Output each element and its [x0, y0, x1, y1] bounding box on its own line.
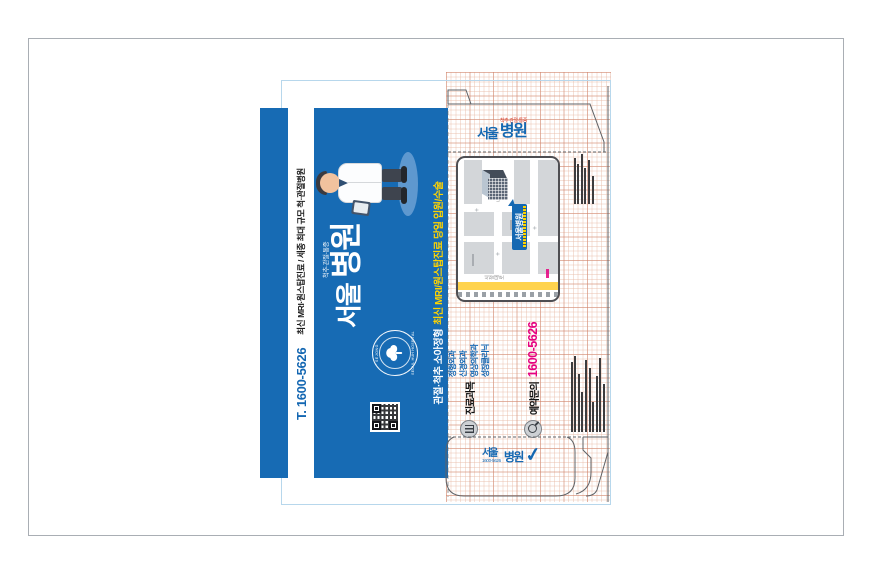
strip-phone: T. 1600-5626 [294, 348, 309, 420]
services-yellow-text: 최신 MRI/원스탑진료 당일 입원/수술 [430, 181, 445, 324]
map-place-dash [472, 254, 474, 266]
intersection-marker: + [532, 226, 539, 230]
main-road-yellow [458, 282, 560, 290]
map-hospital-badge: 서울병원 [512, 204, 527, 250]
contact-strip: T. 1600-5626 최신 MRI·원스탑진료 / 세종 최대 규모 척·관… [288, 108, 314, 478]
flap-logo-suffix: 병원 [500, 124, 526, 140]
intersection-marker: + [474, 208, 481, 212]
location-map: 시청대로 나성북로 + + + 서울병원 [456, 156, 560, 302]
badge-yellow-bar [523, 206, 526, 248]
blue-panel: T. 1600-5626 최신 MRI·원스탑진료 / 세종 최대 규모 척·관… [260, 108, 448, 478]
qr-finder-icon [372, 404, 381, 413]
top-flap-logo: 서울 척추·관절·통증 병원 [477, 117, 527, 140]
flap-logo-phone: 1600-5626 [482, 458, 501, 463]
department-item: 신경외과 [458, 344, 469, 377]
clipboard-icon [351, 200, 371, 216]
map-block [514, 160, 530, 204]
qr-code [370, 402, 400, 432]
intersection-marker: + [495, 252, 502, 256]
tree-icon [386, 345, 402, 361]
qr-finder-icon [372, 421, 381, 430]
railway-line [458, 292, 560, 297]
qr-finder-icon [389, 421, 398, 430]
clinic-section-label: 진료과목 [462, 382, 477, 415]
stamp-bottom-text: SEOUL HUH HOSPITAL [411, 331, 415, 375]
map-block [464, 212, 494, 236]
monogram-text: 서울 [477, 126, 497, 141]
booking-section-label: 예약문의 [526, 382, 541, 415]
map-block [464, 242, 494, 274]
map-block [464, 160, 482, 204]
checkmark-swoosh-icon: ✓ [524, 445, 542, 466]
brand-monogram: 서울 [338, 284, 362, 328]
department-item: 정형외과 [447, 344, 458, 377]
department-list: 정형외과 신경외과 영상의학과 성장클리닉 [447, 344, 491, 377]
logo-tagline: 척추·관절·통증 [320, 242, 330, 278]
hospital-stamp-logo: · SEJONG · SEOUL HUH HOSPITAL [372, 330, 418, 376]
road-label-vertical: 시청대로 [484, 274, 504, 281]
clinic-departments-group: 진료과목 정형외과 신경외과 영상의학과 성장클리닉 [444, 322, 494, 438]
print-layout-canvas: T. 1600-5626 최신 MRI·원스탑진료 / 세종 최대 규모 척·관… [0, 0, 872, 570]
booking-group: 예약문의 1600-5626 [508, 322, 558, 438]
monogram-text: 서울 [334, 284, 364, 328]
logo-suffix: 병원 [330, 223, 362, 278]
fine-print-block [572, 152, 604, 204]
monogram-text: 서울 [482, 449, 496, 458]
doctor-illustration [316, 146, 412, 220]
station-marker [546, 269, 549, 278]
strip-tagline: 최신 MRI·원스탑진료 / 세종 최대 규모 척·관절병원 [295, 168, 307, 335]
hospital-building-icon [488, 178, 508, 200]
clinic-icon [460, 420, 478, 438]
fine-print-block [569, 352, 607, 432]
department-item: 성장클리닉 [480, 344, 491, 377]
bottom-flap-logo: 서울 1600-5626 병원 ✓ [482, 444, 541, 463]
stamp-top-text: · SEJONG · [375, 331, 379, 375]
flap-logo-suffix: 병원 [504, 451, 523, 463]
department-item: 영상의학과 [469, 344, 480, 377]
main-brand-logo: 서울 척추·관절·통증 병원 [320, 223, 362, 328]
phone-inquiry-icon [524, 420, 542, 438]
booking-phone-number: 1600-5626 [526, 322, 540, 377]
services-white-text: 관절·척추 소아정형 [430, 329, 445, 405]
flap-monogram: 서울 [477, 128, 497, 140]
map-block [538, 160, 558, 236]
